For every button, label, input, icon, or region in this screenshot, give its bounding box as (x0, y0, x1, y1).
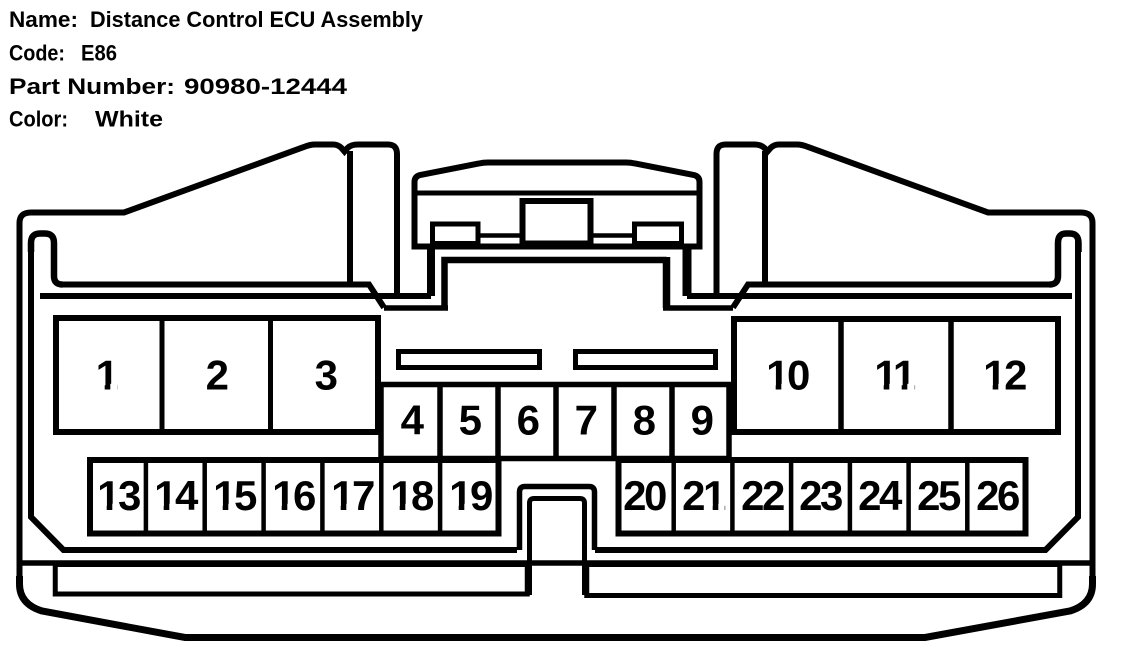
svg-text:9: 9 (691, 397, 713, 444)
svg-text:19: 19 (449, 472, 492, 519)
svg-text:Color:: Color: (9, 107, 68, 132)
svg-text:23: 23 (799, 472, 842, 519)
svg-text:16: 16 (272, 472, 315, 519)
svg-text:21: 21 (682, 472, 726, 519)
svg-text:E86: E86 (81, 41, 117, 66)
svg-text:10: 10 (766, 352, 809, 399)
svg-text:17: 17 (331, 472, 374, 519)
svg-text:25: 25 (917, 472, 961, 519)
svg-text:15: 15 (213, 472, 257, 519)
svg-text:7: 7 (575, 397, 597, 444)
svg-text:Code:: Code: (9, 41, 65, 66)
svg-text:4: 4 (401, 397, 425, 444)
svg-text:20: 20 (623, 472, 666, 519)
svg-text:13: 13 (97, 472, 140, 519)
svg-text:22: 22 (741, 472, 784, 519)
svg-text:3: 3 (315, 352, 337, 399)
svg-text:5: 5 (459, 397, 482, 444)
svg-text:14: 14 (154, 472, 199, 519)
svg-text:8: 8 (633, 397, 656, 444)
svg-text:6: 6 (517, 397, 539, 444)
svg-text:24: 24 (858, 472, 903, 519)
svg-text:1: 1 (96, 352, 119, 399)
svg-text:Name:: Name: (9, 7, 78, 32)
svg-text:12: 12 (983, 352, 1026, 399)
svg-text:90980-12444: 90980-12444 (184, 74, 348, 99)
svg-text:26: 26 (976, 472, 1019, 519)
svg-text:White: White (95, 107, 163, 132)
svg-text:2: 2 (206, 352, 228, 399)
svg-text:Distance Control ECU Assembly: Distance Control ECU Assembly (90, 7, 424, 32)
svg-text:11: 11 (874, 352, 916, 399)
svg-text:Part Number:: Part Number: (9, 74, 175, 99)
svg-text:18: 18 (390, 472, 434, 519)
